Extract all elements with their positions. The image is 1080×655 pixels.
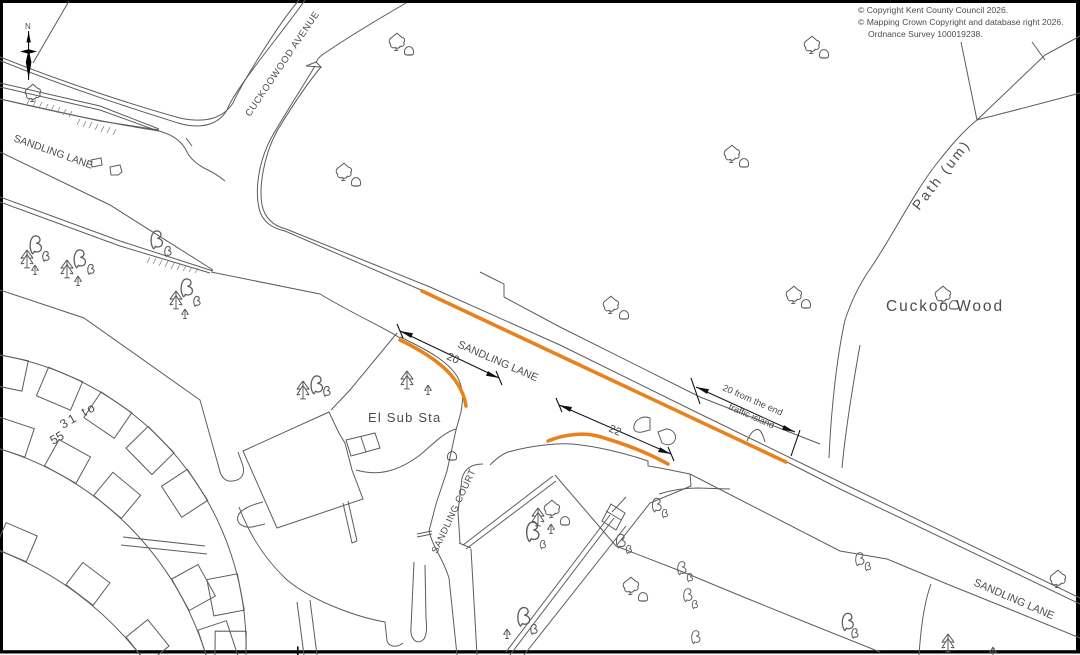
svg-text:Path (um): Path (um) — [909, 136, 974, 213]
svg-text:31 to: 31 to — [58, 399, 100, 431]
svg-text:© Mapping Crown Copyright and: © Mapping Crown Copyright and database r… — [858, 17, 1064, 27]
svg-text:N: N — [25, 22, 31, 31]
svg-text:Cuckoo Wood: Cuckoo Wood — [886, 298, 1004, 315]
svg-text:El Sub Sta: El Sub Sta — [368, 410, 441, 425]
svg-text:Ordnance Survey 100019238.: Ordnance Survey 100019238. — [868, 29, 983, 39]
svg-text:© Copyright Kent County Counci: © Copyright Kent County Council 2026. — [858, 5, 1008, 15]
svg-text:SANDLING COURT: SANDLING COURT — [430, 467, 479, 555]
svg-text:22: 22 — [607, 423, 623, 439]
svg-text:SANDLING LANE: SANDLING LANE — [12, 133, 94, 171]
